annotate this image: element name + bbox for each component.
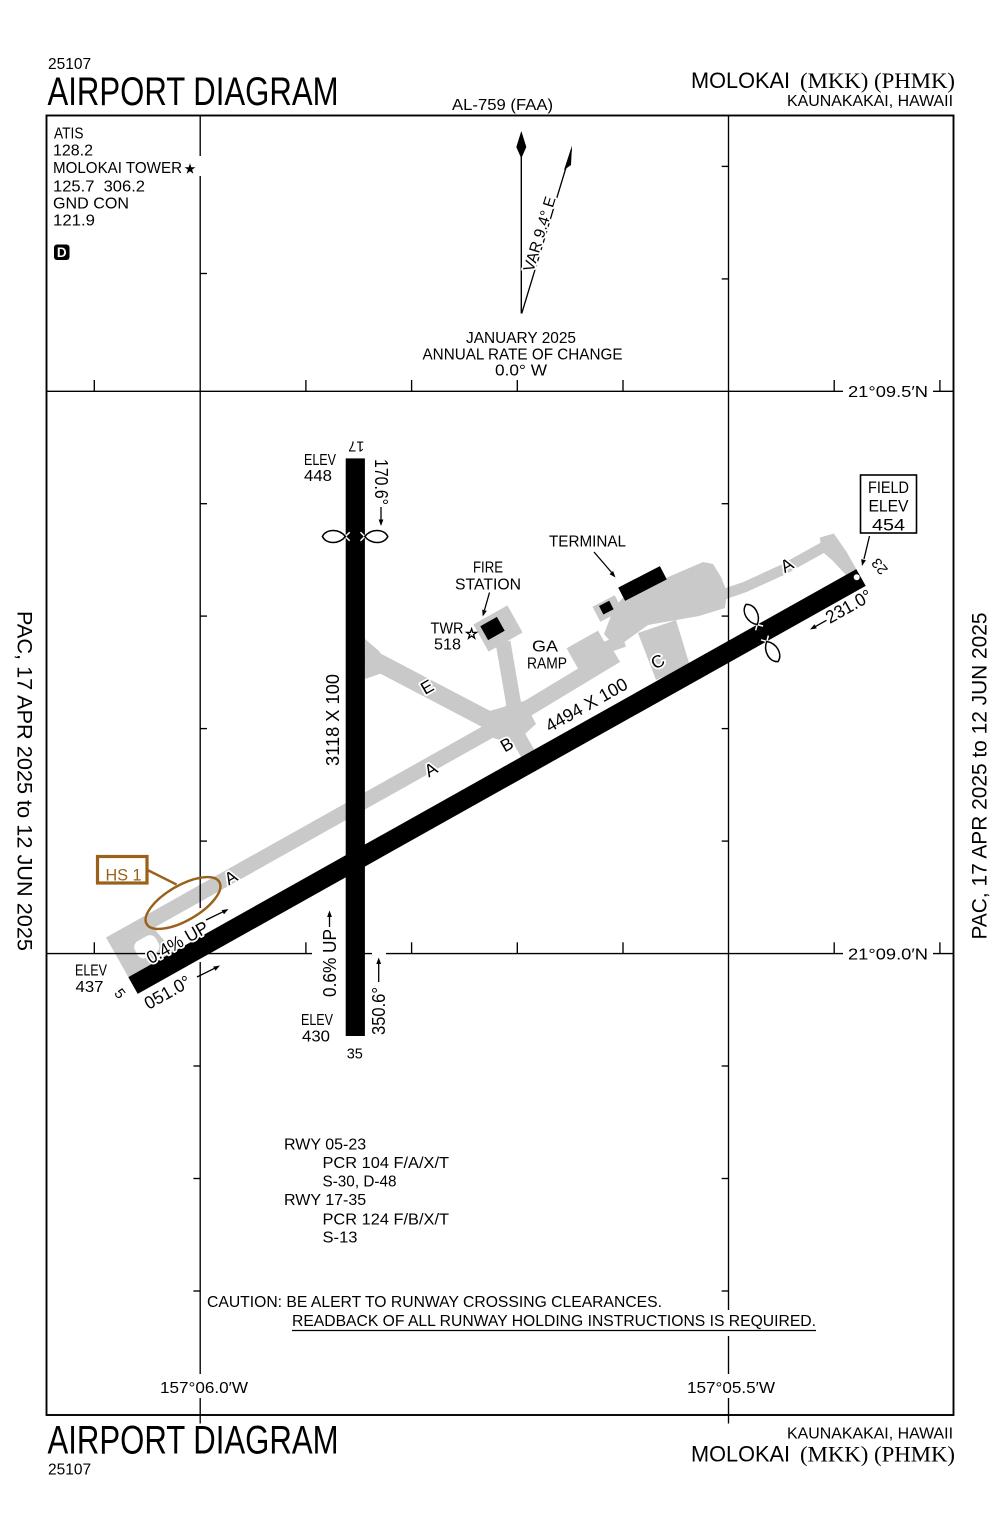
svg-text:GA: GA xyxy=(532,639,559,656)
svg-text:ELEV: ELEV xyxy=(75,962,108,979)
svg-text:5: 5 xyxy=(110,986,128,1002)
svg-text:TWR: TWR xyxy=(431,621,464,638)
svg-text:RWY 05-23: RWY 05-23 xyxy=(284,1137,366,1154)
svg-text:FIELD: FIELD xyxy=(868,479,909,497)
svg-text:RWY 17-35: RWY 17-35 xyxy=(284,1192,366,1209)
svg-text:21°09.0′N: 21°09.0′N xyxy=(848,947,928,964)
svg-text:157°06.0′W: 157°06.0′W xyxy=(160,1380,249,1397)
svg-text:518: 518 xyxy=(434,637,461,654)
svg-text:170.6°: 170.6° xyxy=(371,459,391,505)
svg-text:AIRPORT DIAGRAM: AIRPORT DIAGRAM xyxy=(48,70,339,114)
svg-text:0.0° W: 0.0° W xyxy=(495,363,547,380)
svg-text:ELEV: ELEV xyxy=(304,452,337,469)
svg-text:HS 1: HS 1 xyxy=(106,866,142,885)
svg-text:PAC, 17 APR 2025 to 12 JUN 202: PAC, 17 APR 2025 to 12 JUN 2025 xyxy=(969,613,992,940)
svg-text:D: D xyxy=(57,245,67,260)
svg-text:KAUNAKAKAI, HAWAII: KAUNAKAKAI, HAWAII xyxy=(787,1426,953,1443)
svg-text:MOLOKAI: MOLOKAI xyxy=(691,68,790,93)
svg-text:JANUARY 2025: JANUARY 2025 xyxy=(466,330,576,347)
svg-text:PCR 124 F/B/X/T: PCR 124 F/B/X/T xyxy=(323,1211,450,1228)
svg-text:MOLOKAI: MOLOKAI xyxy=(691,1442,790,1467)
svg-text:AIRPORT DIAGRAM: AIRPORT DIAGRAM xyxy=(48,1419,339,1463)
svg-text:430: 430 xyxy=(302,1029,330,1046)
svg-text:RAMP: RAMP xyxy=(527,656,567,673)
svg-text:121.9: 121.9 xyxy=(53,213,95,230)
svg-text:CAUTION: BE ALERT TO RUNWAY CR: CAUTION: BE ALERT TO RUNWAY CROSSING CLE… xyxy=(207,1294,662,1311)
svg-text:STATION: STATION xyxy=(455,577,521,594)
svg-text:35: 35 xyxy=(347,1046,363,1062)
svg-text:S-30, D-48: S-30, D-48 xyxy=(323,1173,397,1190)
svg-text:ELEV: ELEV xyxy=(301,1012,334,1029)
svg-text:0.6% UP: 0.6% UP xyxy=(320,929,340,997)
svg-text:3118 X 100: 3118 X 100 xyxy=(323,674,343,766)
svg-text:READBACK OF ALL RUNWAY HOLDING: READBACK OF ALL RUNWAY HOLDING INSTRUCTI… xyxy=(292,1313,816,1330)
svg-text:PAC, 17 APR 2025 to 12 JUN 202: PAC, 17 APR 2025 to 12 JUN 2025 xyxy=(13,611,36,951)
svg-text:448: 448 xyxy=(304,468,332,485)
svg-text:TERMINAL: TERMINAL xyxy=(549,534,626,551)
svg-text:FIRE: FIRE xyxy=(473,560,503,577)
svg-text:125.7 306.2: 125.7 306.2 xyxy=(53,179,145,196)
svg-text:KAUNAKAKAI, HAWAII: KAUNAKAKAI, HAWAII xyxy=(787,93,953,110)
svg-text:MOLOKAI TOWER: MOLOKAI TOWER xyxy=(53,160,182,177)
svg-text:GND CON: GND CON xyxy=(53,196,129,213)
svg-text:ATIS: ATIS xyxy=(54,126,84,143)
svg-text:454: 454 xyxy=(872,517,905,535)
svg-text:(MKK) (PHMK): (MKK) (PHMK) xyxy=(800,68,955,93)
svg-text:PCR 104 F/A/X/T: PCR 104 F/A/X/T xyxy=(323,1155,450,1172)
svg-text:ELEV: ELEV xyxy=(869,498,909,516)
svg-text:17: 17 xyxy=(348,437,364,453)
svg-text:25107: 25107 xyxy=(48,1462,91,1479)
svg-text:128.2: 128.2 xyxy=(53,143,93,160)
svg-text:437: 437 xyxy=(76,979,104,996)
svg-text:21°09.5′N: 21°09.5′N xyxy=(848,384,928,401)
svg-text:ANNUAL RATE OF CHANGE: ANNUAL RATE OF CHANGE xyxy=(423,347,623,364)
svg-text:VAR 9.4° E: VAR 9.4° E xyxy=(521,195,560,274)
svg-text:350.6°: 350.6° xyxy=(369,987,389,1035)
svg-text:AL-759 (FAA): AL-759 (FAA) xyxy=(452,97,553,114)
svg-text:23: 23 xyxy=(869,555,892,578)
svg-text:S-13: S-13 xyxy=(323,1229,358,1246)
svg-text:(MKK) (PHMK): (MKK) (PHMK) xyxy=(800,1442,955,1467)
svg-text:157°05.5′W: 157°05.5′W xyxy=(687,1380,776,1397)
